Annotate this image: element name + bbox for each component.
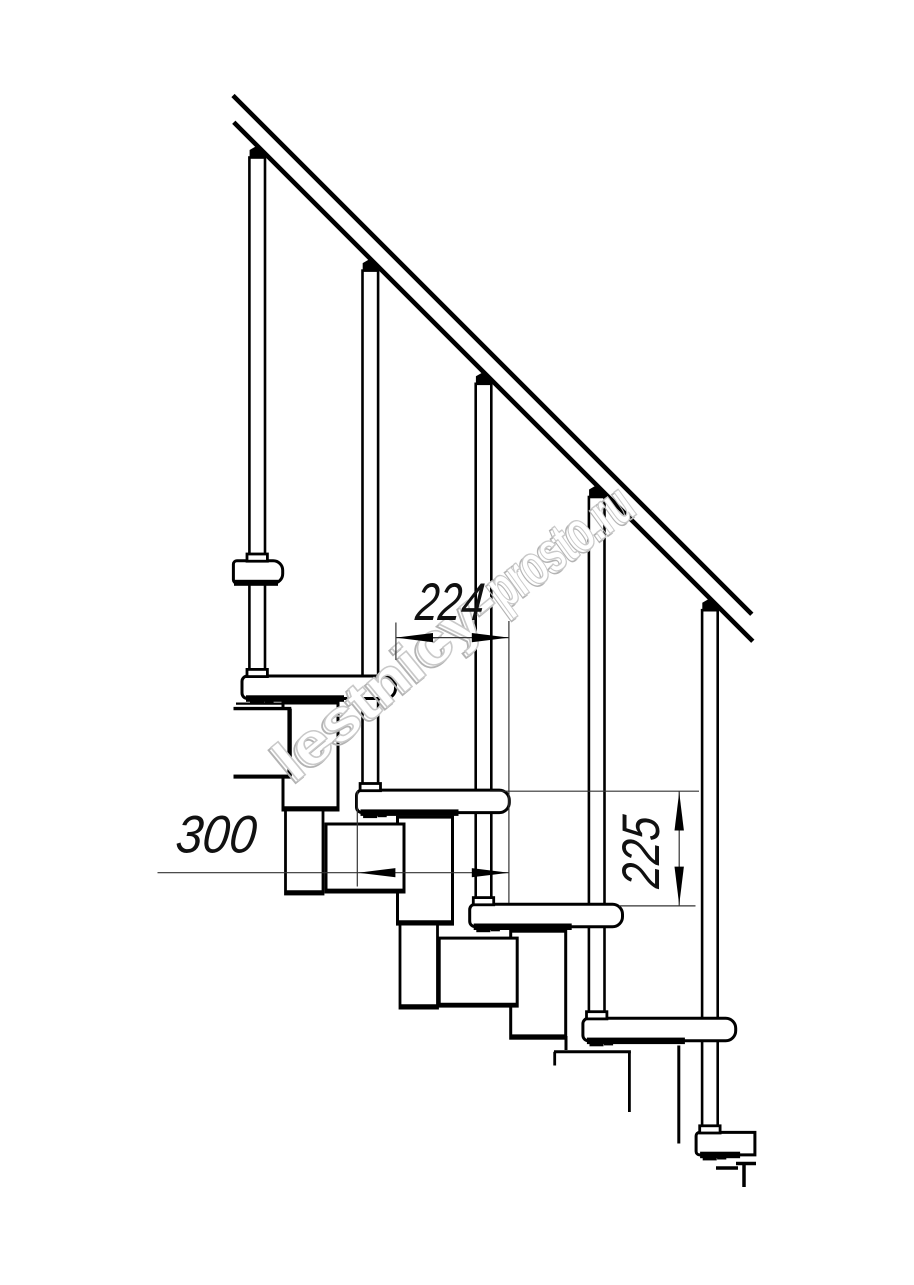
svg-text:300: 300: [173, 806, 260, 865]
svg-text:225: 225: [612, 813, 671, 891]
svg-text:224: 224: [412, 573, 487, 632]
